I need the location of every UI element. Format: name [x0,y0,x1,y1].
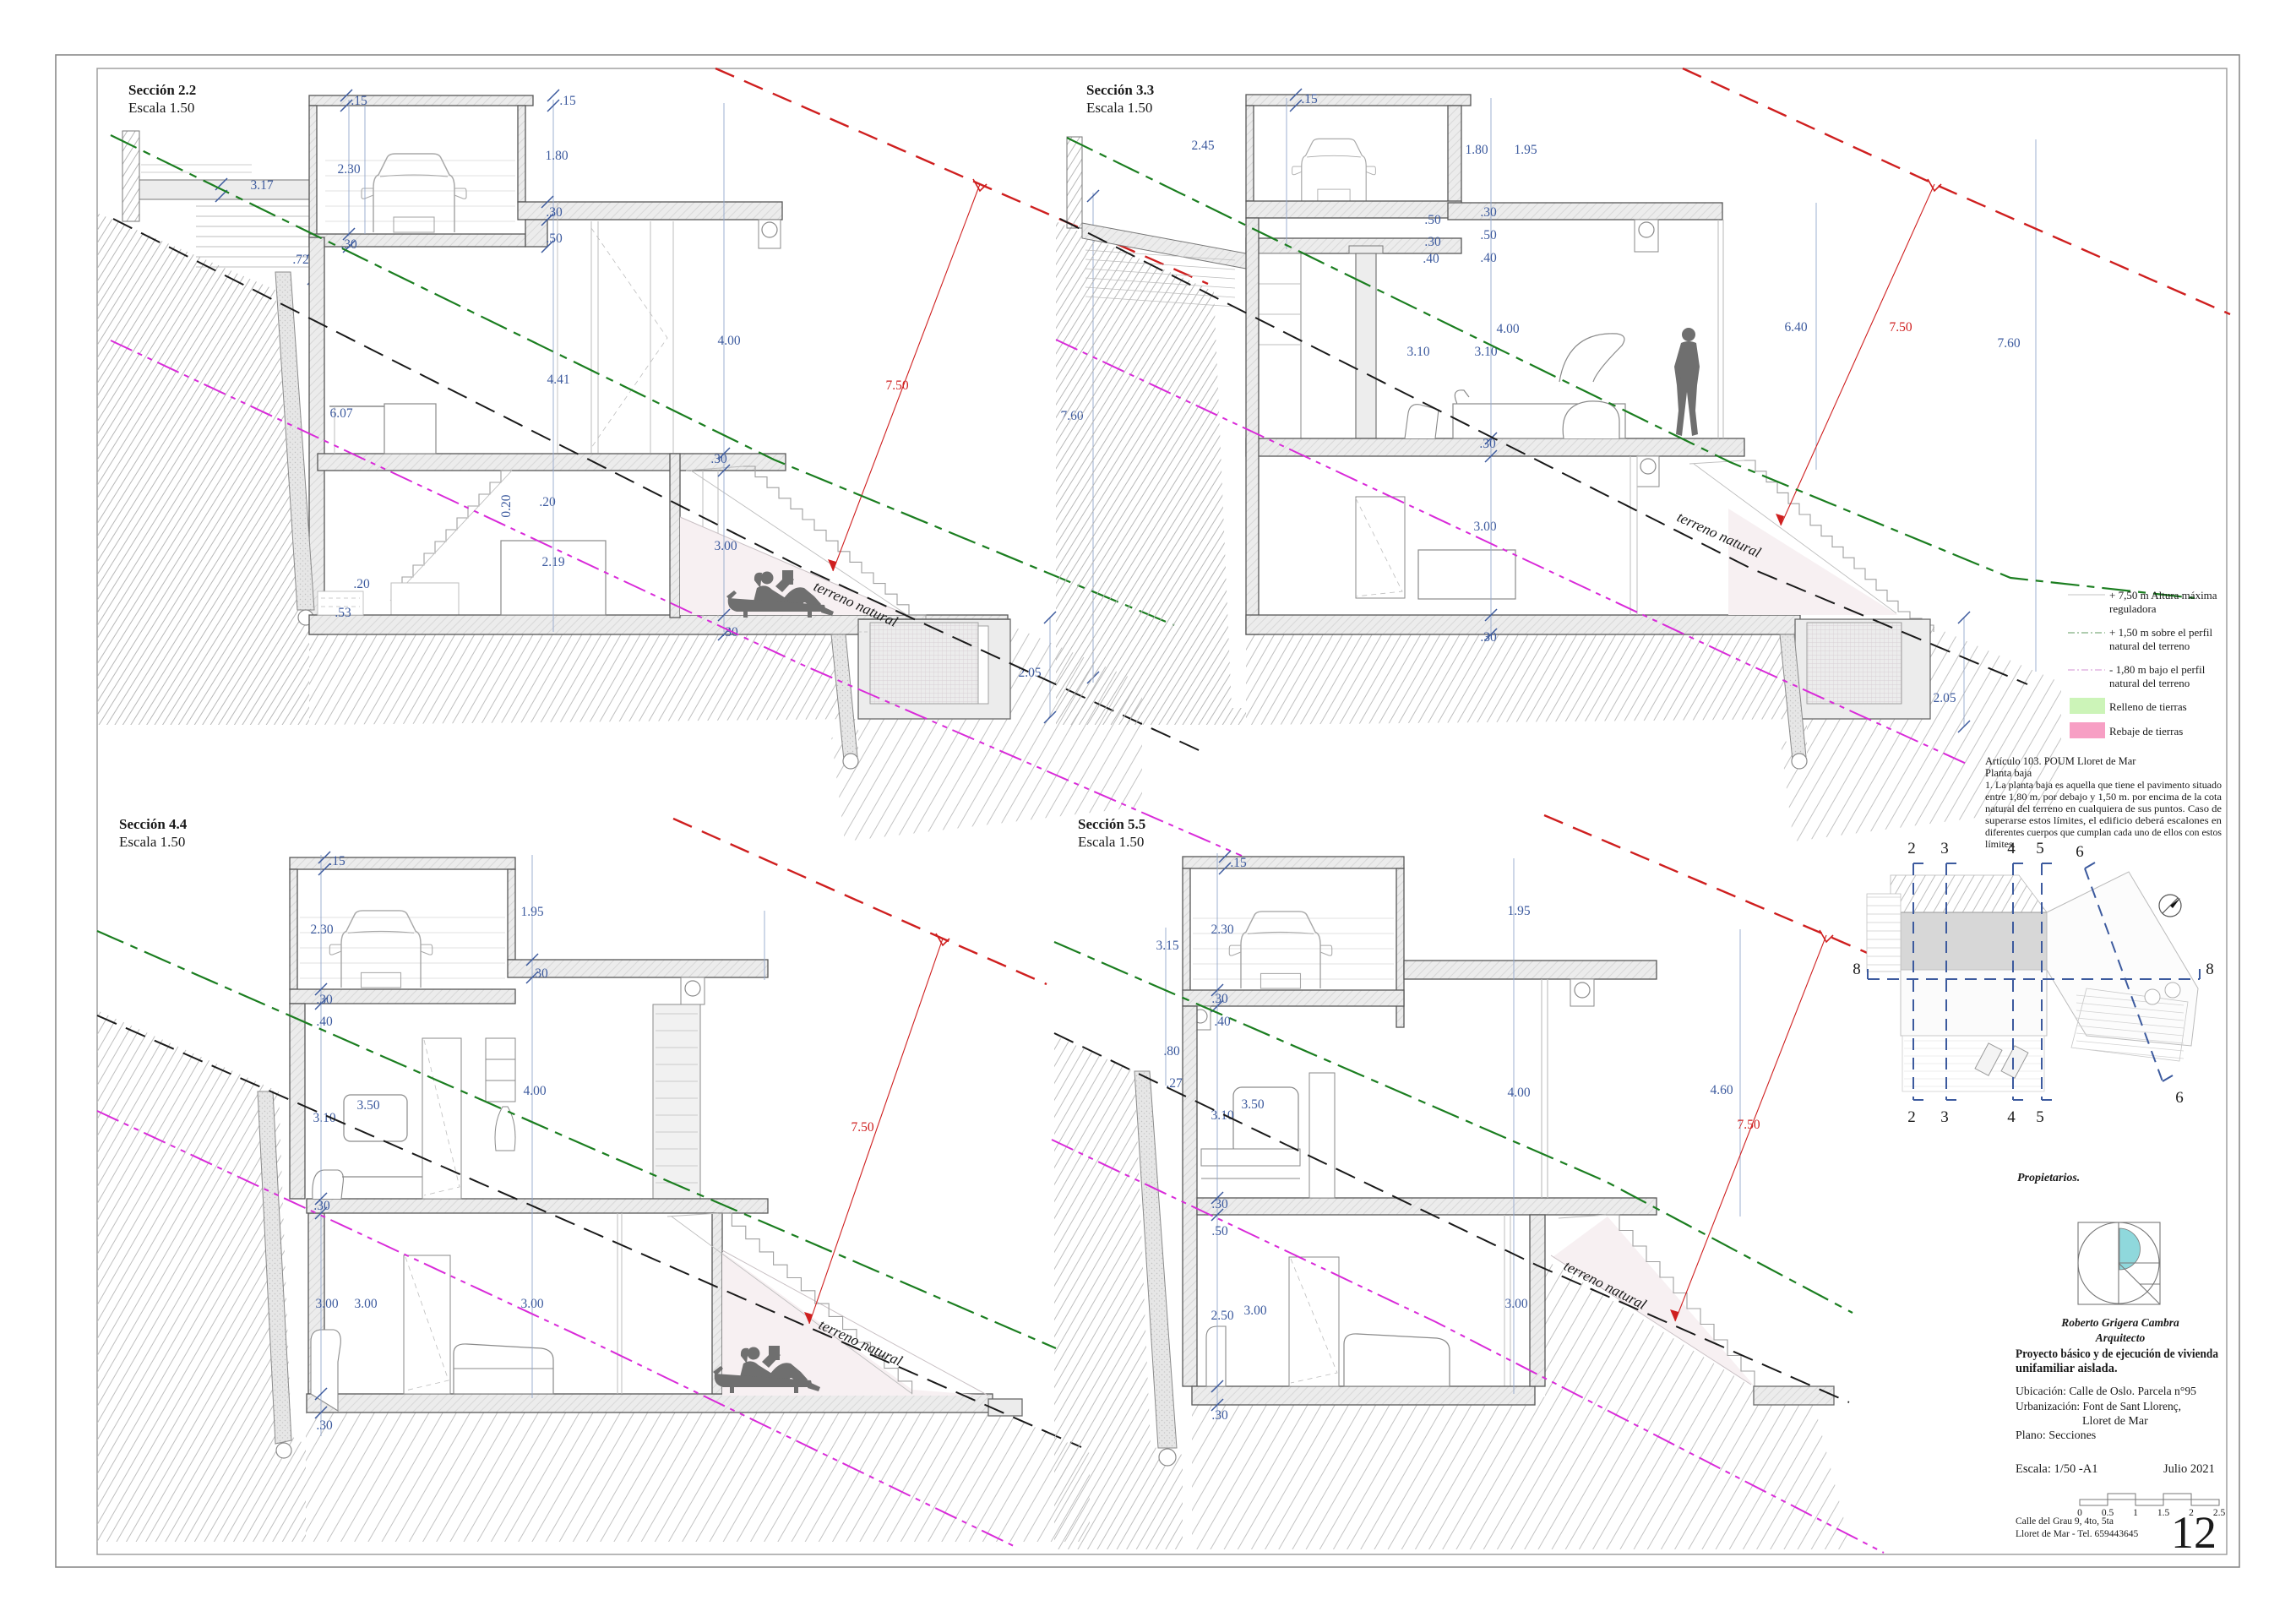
svg-text:3.50: 3.50 [1241,1097,1264,1112]
svg-text:reguladora: reguladora [2109,602,2157,615]
svg-text:3.10: 3.10 [1211,1108,1233,1123]
svg-text:0.20: 0.20 [499,494,514,517]
svg-text:Proyecto básico y de ejecución: Proyecto básico y de ejecución de vivien… [2016,1347,2219,1361]
svg-text:Escala: 1/50 -A1: Escala: 1/50 -A1 [2016,1462,2097,1476]
svg-text:Propietarios.: Propietarios. [2017,1172,2080,1184]
svg-text:.30: .30 [1424,235,1441,249]
svg-text:Artículo 103. POUM Lloret de M: Artículo 103. POUM Lloret de Mar [1985,755,2136,767]
svg-text:.50: .50 [1424,213,1441,227]
svg-text:Escala 1.50: Escala 1.50 [1078,834,1144,850]
svg-text:+ 1,50 m sobre el perfil: + 1,50 m sobre el perfil [2109,626,2213,639]
svg-text:.30: .30 [546,205,563,220]
svg-text:.15: .15 [351,94,367,108]
svg-text:12: 12 [2171,1507,2217,1558]
svg-text:.30: .30 [1480,205,1497,220]
svg-text:Escala 1.50: Escala 1.50 [128,100,194,116]
svg-text:Planta baja: Planta baja [1985,767,2032,779]
svg-text:Plano: Secciones: Plano: Secciones [2016,1429,2096,1442]
svg-text:2: 2 [1907,840,1916,857]
svg-text:.72: .72 [292,253,308,267]
svg-text:2.30: 2.30 [337,162,360,177]
svg-text:Escala 1.50: Escala 1.50 [1086,100,1152,116]
svg-text:6.07: 6.07 [329,406,352,421]
svg-text:1.95: 1.95 [520,905,543,919]
svg-text:3.50: 3.50 [356,1098,379,1113]
svg-text:.53: .53 [335,606,351,620]
svg-text:.30: .30 [313,1199,330,1213]
svg-text:Sección 3.3: Sección 3.3 [1086,82,1154,98]
svg-text:Rebaje de tierras: Rebaje de tierras [2109,725,2183,738]
svg-text:4.41: 4.41 [547,373,569,387]
svg-text:3.00: 3.00 [1473,520,1496,534]
svg-text:4: 4 [2007,840,2016,857]
svg-text:1. La planta baja es aquella q: 1. La planta baja es aquella que tiene e… [1985,779,2222,791]
svg-text:1: 1 [2133,1508,2138,1518]
svg-text:7.60: 7.60 [1997,336,2020,351]
svg-text:4.00: 4.00 [523,1084,546,1098]
svg-text:2.30: 2.30 [1211,923,1233,937]
svg-text:4.00: 4.00 [717,334,740,348]
svg-text:3.00: 3.00 [354,1297,377,1311]
svg-text:Calle del Grau 9, 4to, 5ta: Calle del Grau 9, 4to, 5ta [2016,1516,2114,1527]
svg-text:Lloret de Mar - Tel. 659443645: Lloret de Mar - Tel. 659443645 [2016,1529,2139,1539]
svg-text:8: 8 [2206,961,2214,978]
svg-text:Sección 5.5: Sección 5.5 [1078,816,1145,832]
svg-text:.40: .40 [1480,251,1497,265]
svg-text:.50: .50 [1480,228,1497,242]
svg-text:2.45: 2.45 [1191,139,1214,153]
svg-text:1.95: 1.95 [1507,904,1530,918]
svg-text:2: 2 [1907,1108,1916,1126]
svg-text:Escala 1.50: Escala 1.50 [119,834,185,850]
svg-text:2.19: 2.19 [541,555,564,569]
svg-text:.15: .15 [1301,92,1318,106]
svg-text:3.15: 3.15 [1156,939,1178,953]
svg-text:4.00: 4.00 [1507,1086,1530,1100]
svg-text:1.95: 1.95 [1514,143,1537,157]
svg-text:3.10: 3.10 [1406,345,1429,359]
svg-text:.15: .15 [329,854,345,868]
svg-text:.20: .20 [353,577,370,591]
svg-text:natural del terreno en cualqui: natural del terreno en cualquiera de sus… [1985,803,2222,814]
svg-text:diferentes cuerpos que cumplan: diferentes cuerpos que cumplan cada uno … [1985,826,2222,838]
svg-text:3: 3 [1940,840,1949,857]
svg-text:3.00: 3.00 [520,1297,543,1311]
svg-text:Urbanización: Font de Sant Llo: Urbanización: Font de Sant Llorenç, [2016,1401,2181,1413]
svg-text:superarse estos límites, el ed: superarse estos límites, el edificio deb… [1985,814,2222,826]
svg-text:unifamiliar aislada.: unifamiliar aislada. [2016,1362,2118,1375]
svg-text:Sección 4.4: Sección 4.4 [119,816,188,832]
svg-text:natural del terreno: natural del terreno [2109,640,2190,652]
svg-text:Arquitecto: Arquitecto [2095,1331,2146,1344]
svg-text:3.00: 3.00 [1504,1297,1527,1311]
svg-text:1.5: 1.5 [2157,1508,2170,1518]
svg-text:entre 1,80 m. por debajo y 1,5: entre 1,80 m. por debajo y 1,50 m. por e… [1985,791,2223,803]
svg-text:.30: .30 [1211,1197,1228,1211]
svg-text:1.80: 1.80 [545,149,568,163]
svg-text:natural del terreno: natural del terreno [2109,677,2190,689]
svg-text:5: 5 [2036,840,2044,857]
svg-text:4.60: 4.60 [1710,1083,1733,1097]
svg-text:Sección 2.2: Sección 2.2 [128,82,196,98]
svg-text:.30: .30 [531,966,548,981]
svg-text:8: 8 [1853,961,1861,978]
svg-text:2.05: 2.05 [1933,691,1956,705]
svg-text:.50: .50 [1211,1224,1228,1238]
svg-text:1.80: 1.80 [1465,143,1488,157]
svg-text:- 1,80 m bajo el perfil: - 1,80 m bajo el perfil [2109,663,2206,676]
svg-text:.15: .15 [1230,856,1247,870]
svg-text:.40: .40 [1423,252,1439,266]
svg-text:.50: .50 [546,231,563,246]
svg-text:.40: .40 [1214,1015,1231,1029]
svg-text:5: 5 [2036,1108,2044,1126]
svg-text:.40: .40 [316,1015,333,1029]
svg-text:6.40: 6.40 [1784,320,1807,335]
svg-text:+ 7,50 m Altura máxima: + 7,50 m Altura máxima [2109,589,2217,601]
svg-text:Julio 2021: Julio 2021 [2163,1462,2215,1476]
svg-text:Lloret de Mar: Lloret de Mar [2082,1415,2148,1428]
svg-text:3.00: 3.00 [1243,1304,1266,1318]
svg-text:7.50: 7.50 [885,378,908,393]
svg-text:Ubicación: Calle de Oslo. Parc: Ubicación: Calle de Oslo. Parcela n°95 [2016,1385,2196,1398]
svg-text:4.00: 4.00 [1496,322,1519,336]
svg-text:7.50: 7.50 [851,1120,873,1135]
svg-text:3.17: 3.17 [250,178,273,193]
svg-text:.80: .80 [1163,1044,1180,1059]
svg-text:2.30: 2.30 [310,923,333,937]
svg-text:3: 3 [1940,1108,1949,1126]
svg-text:.30: .30 [316,1418,333,1433]
svg-text:2.50: 2.50 [1211,1309,1233,1323]
svg-text:Relleno de tierras: Relleno de tierras [2109,700,2187,713]
svg-text:3.00: 3.00 [714,539,737,553]
svg-text:Roberto Grigera Cambra: Roberto Grigera Cambra [2060,1316,2179,1329]
svg-text:7.50: 7.50 [1737,1118,1760,1132]
svg-text:.15: .15 [559,94,576,108]
svg-text:4: 4 [2007,1108,2016,1126]
svg-text:7.50: 7.50 [1889,320,1912,335]
svg-text:6: 6 [2175,1089,2184,1107]
svg-text:.30: .30 [1211,1408,1228,1423]
svg-text:3.00: 3.00 [315,1297,338,1311]
svg-text:6: 6 [2076,843,2084,861]
